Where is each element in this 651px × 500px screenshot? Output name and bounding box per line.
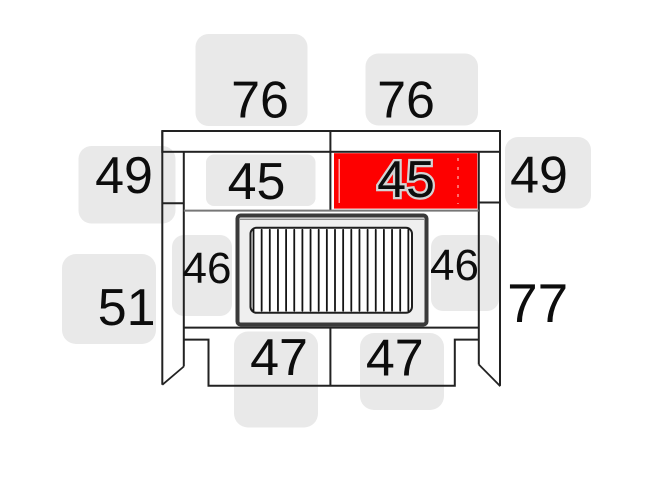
svg-text:47: 47 bbox=[366, 330, 424, 388]
svg-text:45: 45 bbox=[377, 151, 435, 209]
svg-text:51: 51 bbox=[98, 279, 156, 337]
svg-text:46: 46 bbox=[430, 241, 479, 290]
svg-text:49: 49 bbox=[95, 147, 153, 205]
svg-text:76: 76 bbox=[377, 72, 435, 130]
svg-text:47: 47 bbox=[250, 329, 308, 387]
svg-text:45: 45 bbox=[228, 153, 286, 211]
svg-text:46: 46 bbox=[183, 244, 232, 293]
svg-text:76: 76 bbox=[231, 72, 289, 130]
svg-text:77: 77 bbox=[507, 272, 568, 334]
svg-text:49: 49 bbox=[510, 147, 568, 205]
